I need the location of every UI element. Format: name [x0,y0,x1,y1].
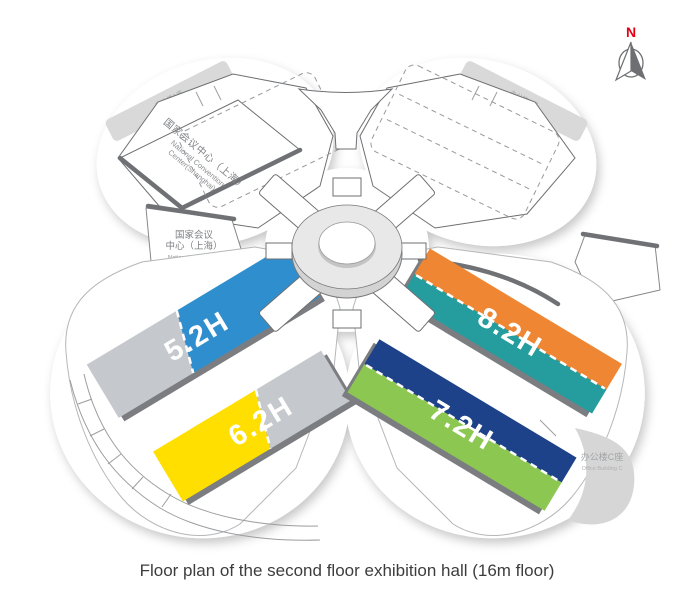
office-band-c-en: Office Building C [582,466,623,472]
north-arrow-outline-half [616,42,631,80]
convention-side-zh2: 中心（上海） [165,240,222,252]
tab-east [400,243,426,259]
north-arrow-solid-half [631,42,646,80]
tab-south [333,310,361,328]
convention-side-zh1: 国家会议 [175,229,214,241]
floor-plan-svg: 办公楼A座 Office Building A 国家会议中心（上海） Natio… [0,0,693,607]
tab-north [333,178,361,196]
tab-west [266,243,292,259]
north-label: N [626,24,636,40]
north-arrow: N [616,24,646,80]
office-band-c-zh: 办公楼C座 [581,451,624,462]
floor-plan-page: 办公楼A座 Office Building A 国家会议中心（上海） Natio… [0,0,693,607]
central-ring [292,205,402,298]
caption: Floor plan of the second floor exhibitio… [140,561,555,580]
ring-hole [319,222,375,264]
